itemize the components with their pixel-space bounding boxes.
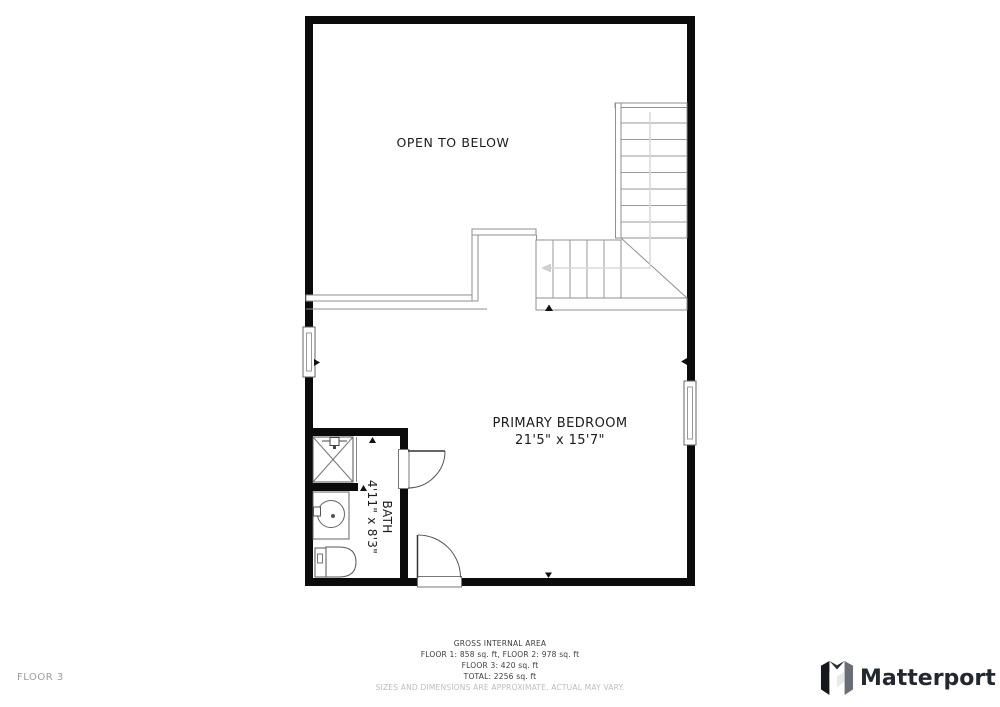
shower: [313, 437, 357, 482]
left-window: [303, 327, 315, 377]
primary-bedroom-label: PRIMARY BEDROOM 21'5" x 15'7": [440, 415, 680, 449]
bath-wall-top: [306, 428, 408, 436]
tick-left-wall: [314, 359, 320, 366]
floor-plan-drawing: [0, 0, 1000, 707]
railing-top: [472, 229, 536, 235]
area-summary-title: GROSS INTERNAL AREA: [300, 638, 700, 649]
wall-bottom: [305, 578, 695, 586]
faucet-icon: [314, 507, 321, 516]
primary-bedroom-dimensions: 21'5" x 15'7": [440, 432, 680, 449]
bath-door: [399, 450, 446, 489]
bath-label: BATH 4'11" x 8'3": [362, 462, 394, 572]
open-to-below-railing: [306, 229, 537, 301]
area-summary-total: TOTAL: 2256 sq. ft: [300, 671, 700, 682]
area-summary: GROSS INTERNAL AREA FLOOR 1: 858 sq. ft,…: [300, 638, 700, 693]
tick-bottom-wall: [545, 573, 552, 579]
tick-right-wall: [681, 358, 687, 365]
matterport-logo: Matterport: [820, 659, 996, 697]
wall-top: [305, 16, 695, 24]
stair-landing: [536, 298, 687, 310]
area-summary-floor-3: FLOOR 3: 420 sq. ft: [300, 660, 700, 671]
faucet-drain-icon: [331, 514, 335, 518]
toilet-button: [318, 554, 323, 563]
matterport-m-icon: [820, 660, 854, 696]
railing-horizontal: [306, 295, 478, 301]
toilet-bowl: [326, 547, 356, 577]
primary-bedroom-name: PRIMARY BEDROOM: [440, 415, 680, 432]
vanity-sink: [313, 492, 349, 539]
door-swing-arc: [408, 451, 445, 488]
open-to-below-label: OPEN TO BELOW: [340, 135, 566, 150]
shower-stub-wall: [306, 483, 358, 491]
toilet: [315, 547, 356, 577]
floor-plan-page: OPEN TO BELOW PRIMARY BEDROOM 21'5" x 15…: [0, 0, 1000, 707]
bath-wall-right-upper: [400, 436, 408, 450]
stair-top-cap: [615, 103, 687, 108]
bath-name: BATH: [379, 462, 394, 572]
door-swing-arc: [418, 535, 461, 578]
size-disclaimer: SIZES AND DIMENSIONS ARE APPROXIMATE, AC…: [300, 682, 700, 693]
matterport-wordmark: Matterport: [860, 666, 996, 691]
bedroom-door: [418, 535, 462, 587]
railing-vertical: [472, 229, 478, 301]
bath-dimensions: 4'11" x 8'3": [364, 462, 379, 572]
wall-right: [687, 16, 695, 586]
bath-wall-right-lower: [400, 488, 408, 578]
stair-side-stringer: [616, 103, 622, 238]
right-window: [684, 381, 696, 445]
area-summary-floors-1-2: FLOOR 1: 858 sq. ft, FLOOR 2: 978 sq. ft: [300, 649, 700, 660]
tick-bath-upper: [369, 437, 376, 443]
floor-number-label: FLOOR 3: [17, 672, 64, 683]
